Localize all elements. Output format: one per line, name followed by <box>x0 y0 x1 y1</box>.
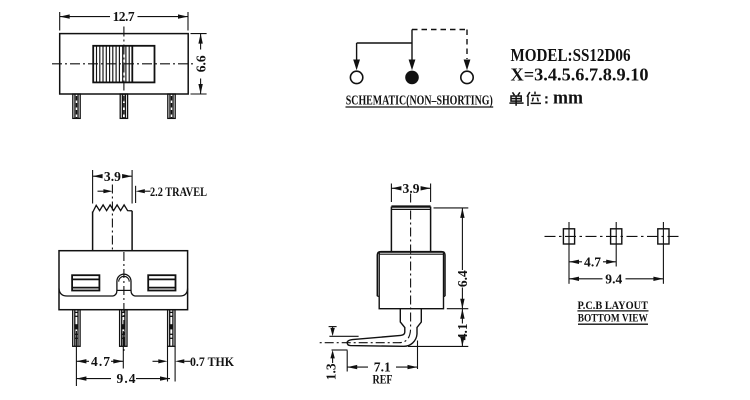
svg-text:SCHEMATIC(NON–SHORTING): SCHEMATIC(NON–SHORTING) <box>346 92 493 107</box>
svg-text:6.6: 6.6 <box>193 55 208 72</box>
svg-text:9.4: 9.4 <box>605 271 622 286</box>
svg-text:9.4: 9.4 <box>117 371 136 386</box>
svg-text:P.C.B LAYOUT: P.C.B LAYOUT <box>577 300 648 312</box>
svg-text:4.7: 4.7 <box>584 254 601 269</box>
svg-text:BOTTOM VIEW: BOTTOM VIEW <box>578 313 648 325</box>
svg-text:MODEL:SS12D06: MODEL:SS12D06 <box>511 45 631 65</box>
svg-text:4.1: 4.1 <box>455 323 470 340</box>
svg-text:2.2 TRAVEL: 2.2 TRAVEL <box>150 184 207 199</box>
svg-text:X=3.4.5.6.7.8.9.10: X=3.4.5.6.7.8.9.10 <box>511 64 649 84</box>
svg-text:0.7 THK: 0.7 THK <box>190 354 235 369</box>
svg-text:12.7: 12.7 <box>113 9 135 24</box>
svg-text:3.9: 3.9 <box>104 169 121 184</box>
svg-text:6.4: 6.4 <box>455 270 470 287</box>
svg-text:mm: mm <box>553 88 583 109</box>
svg-text:1.3: 1.3 <box>323 363 338 380</box>
svg-text:4.7: 4.7 <box>91 354 110 369</box>
svg-text:REF: REF <box>373 372 393 387</box>
